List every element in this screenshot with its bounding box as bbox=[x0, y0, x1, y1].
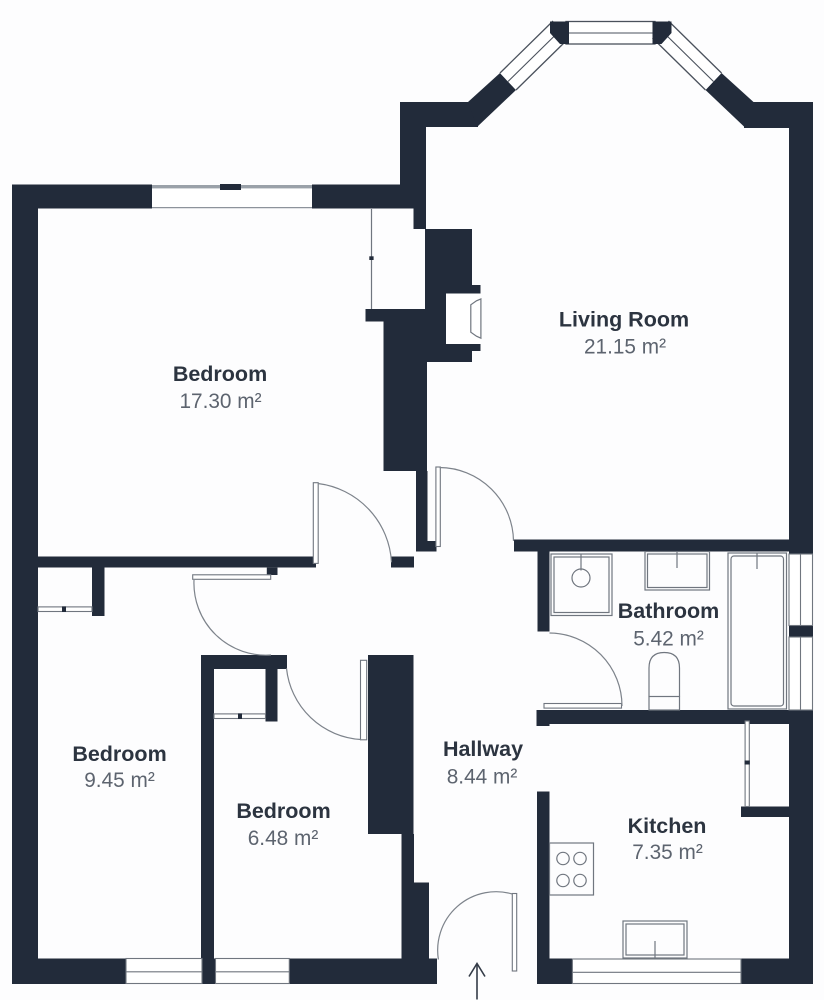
svg-text:Bedroom: Bedroom bbox=[72, 742, 166, 766]
svg-text:21.15 m²: 21.15 m² bbox=[584, 336, 666, 359]
svg-text:Bedroom: Bedroom bbox=[173, 362, 267, 386]
svg-text:Living Room: Living Room bbox=[559, 308, 689, 332]
svg-text:9.45 m²: 9.45 m² bbox=[84, 769, 155, 792]
svg-text:6.48 m²: 6.48 m² bbox=[248, 827, 319, 850]
svg-text:Kitchen: Kitchen bbox=[628, 814, 707, 838]
svg-text:7.35 m²: 7.35 m² bbox=[632, 841, 703, 864]
svg-text:8.44 m²: 8.44 m² bbox=[447, 766, 518, 789]
svg-text:17.30 m²: 17.30 m² bbox=[179, 390, 261, 413]
svg-text:Hallway: Hallway bbox=[443, 737, 523, 761]
svg-text:5.42 m²: 5.42 m² bbox=[633, 628, 704, 651]
svg-text:Bathroom: Bathroom bbox=[618, 599, 720, 623]
svg-text:Bedroom: Bedroom bbox=[236, 799, 330, 823]
